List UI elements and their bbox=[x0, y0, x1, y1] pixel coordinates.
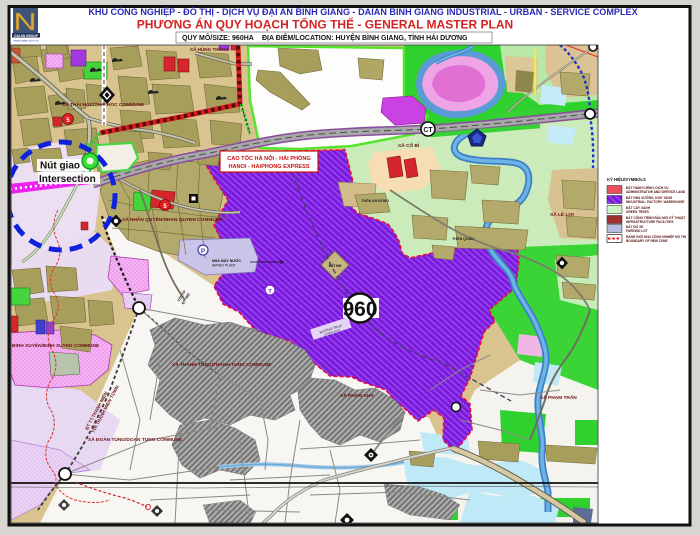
svg-text:WATER PLANT: WATER PLANT bbox=[212, 264, 236, 268]
svg-text:KHU CÔNG NGHIỆP - ĐÔ THỊ - DỊC: KHU CÔNG NGHIỆP - ĐÔ THỊ - DỊCH VỤ ĐẠI A… bbox=[88, 6, 637, 17]
svg-text:XÃ PHẠM TRẤN: XÃ PHẠM TRẤN bbox=[540, 394, 577, 401]
svg-text:P: P bbox=[201, 248, 206, 255]
svg-text:INFRASTRUCTURE FACILITIES: INFRASTRUCTURE FACILITIES bbox=[626, 220, 673, 224]
svg-text:KÝ HIỆU/SYMBOLS: KÝ HIỆU/SYMBOLS bbox=[607, 177, 646, 182]
svg-text:PHƯƠNG ÁN QUY HOẠCH TỔNG THỂ -: PHƯƠNG ÁN QUY HOẠCH TỔNG THỂ - GENERAL M… bbox=[137, 17, 513, 32]
svg-text:CAO TỐC HÀ NỘI - HẢI PHÒNG: CAO TỐC HÀ NỘI - HẢI PHÒNG bbox=[227, 154, 311, 162]
svg-text:XÃ THÁI HỌC/THAI HOC COMMUNE: XÃ THÁI HỌC/THAI HOC COMMUNE bbox=[62, 101, 145, 108]
svg-text:ADMINISTRATIVE AND SERVICE LAN: ADMINISTRATIVE AND SERVICE LAND bbox=[626, 190, 686, 194]
svg-text:PARKING LOT: PARKING LOT bbox=[626, 229, 648, 233]
svg-text:Nút giao: Nút giao bbox=[40, 161, 80, 172]
svg-text:THÔN QUÀN: THÔN QUÀN bbox=[452, 236, 474, 241]
svg-text:XÃ PHẠM KHA: XÃ PHẠM KHA bbox=[340, 392, 374, 399]
svg-text:INDUSTRIAL, FACTORY, WAREHOUSE: INDUSTRIAL, FACTORY, WAREHOUSE bbox=[626, 200, 684, 204]
svg-text:www.daian.com.vn: www.daian.com.vn bbox=[13, 39, 38, 43]
svg-text:ĐỊA ĐIỂM/LOCATION: HUYỆN BÌNH: ĐỊA ĐIỂM/LOCATION: HUYỆN BÌNH GIANG, TỈN… bbox=[262, 33, 468, 42]
svg-text:DAI AN GROUP: DAI AN GROUP bbox=[14, 34, 38, 38]
svg-text:XÃ NHÂN QUYỀN/NHAN QUYEN COMMU: XÃ NHÂN QUYỀN/NHAN QUYEN COMMUNE bbox=[122, 216, 223, 223]
svg-text:Intersection: Intersection bbox=[39, 174, 96, 185]
svg-text:QUY MÔ/SIZE: 960HA: QUY MÔ/SIZE: 960HA bbox=[182, 33, 254, 42]
svg-text:XÃ ĐOÀN TÙNG/DOAN TUNG COMMUNE: XÃ ĐOÀN TÙNG/DOAN TUNG COMMUNE bbox=[88, 436, 183, 443]
svg-text:CT: CT bbox=[423, 127, 433, 134]
svg-text:NHÀ MÁY NƯỚC: NHÀ MÁY NƯỚC bbox=[212, 258, 241, 263]
svg-text:GREEN TREES: GREEN TREES bbox=[626, 210, 649, 214]
svg-text:THÔN AN ĐÔNG: THÔN AN ĐÔNG bbox=[361, 198, 389, 203]
svg-text:960: 960 bbox=[342, 298, 377, 321]
svg-text:HANOI - HAIPHONG EXPRESS: HANOI - HAIPHONG EXPRESS bbox=[228, 164, 309, 170]
svg-text:XÃ THANH TÙNG/THANH TUNG COMMU: XÃ THANH TÙNG/THANH TUNG COMMUNE bbox=[172, 361, 272, 368]
svg-text:XÃ HÙNG THẮNG: XÃ HÙNG THẮNG bbox=[190, 45, 229, 52]
svg-text:BOUNDARY OF NEW ZONE: BOUNDARY OF NEW ZONE bbox=[626, 239, 668, 243]
